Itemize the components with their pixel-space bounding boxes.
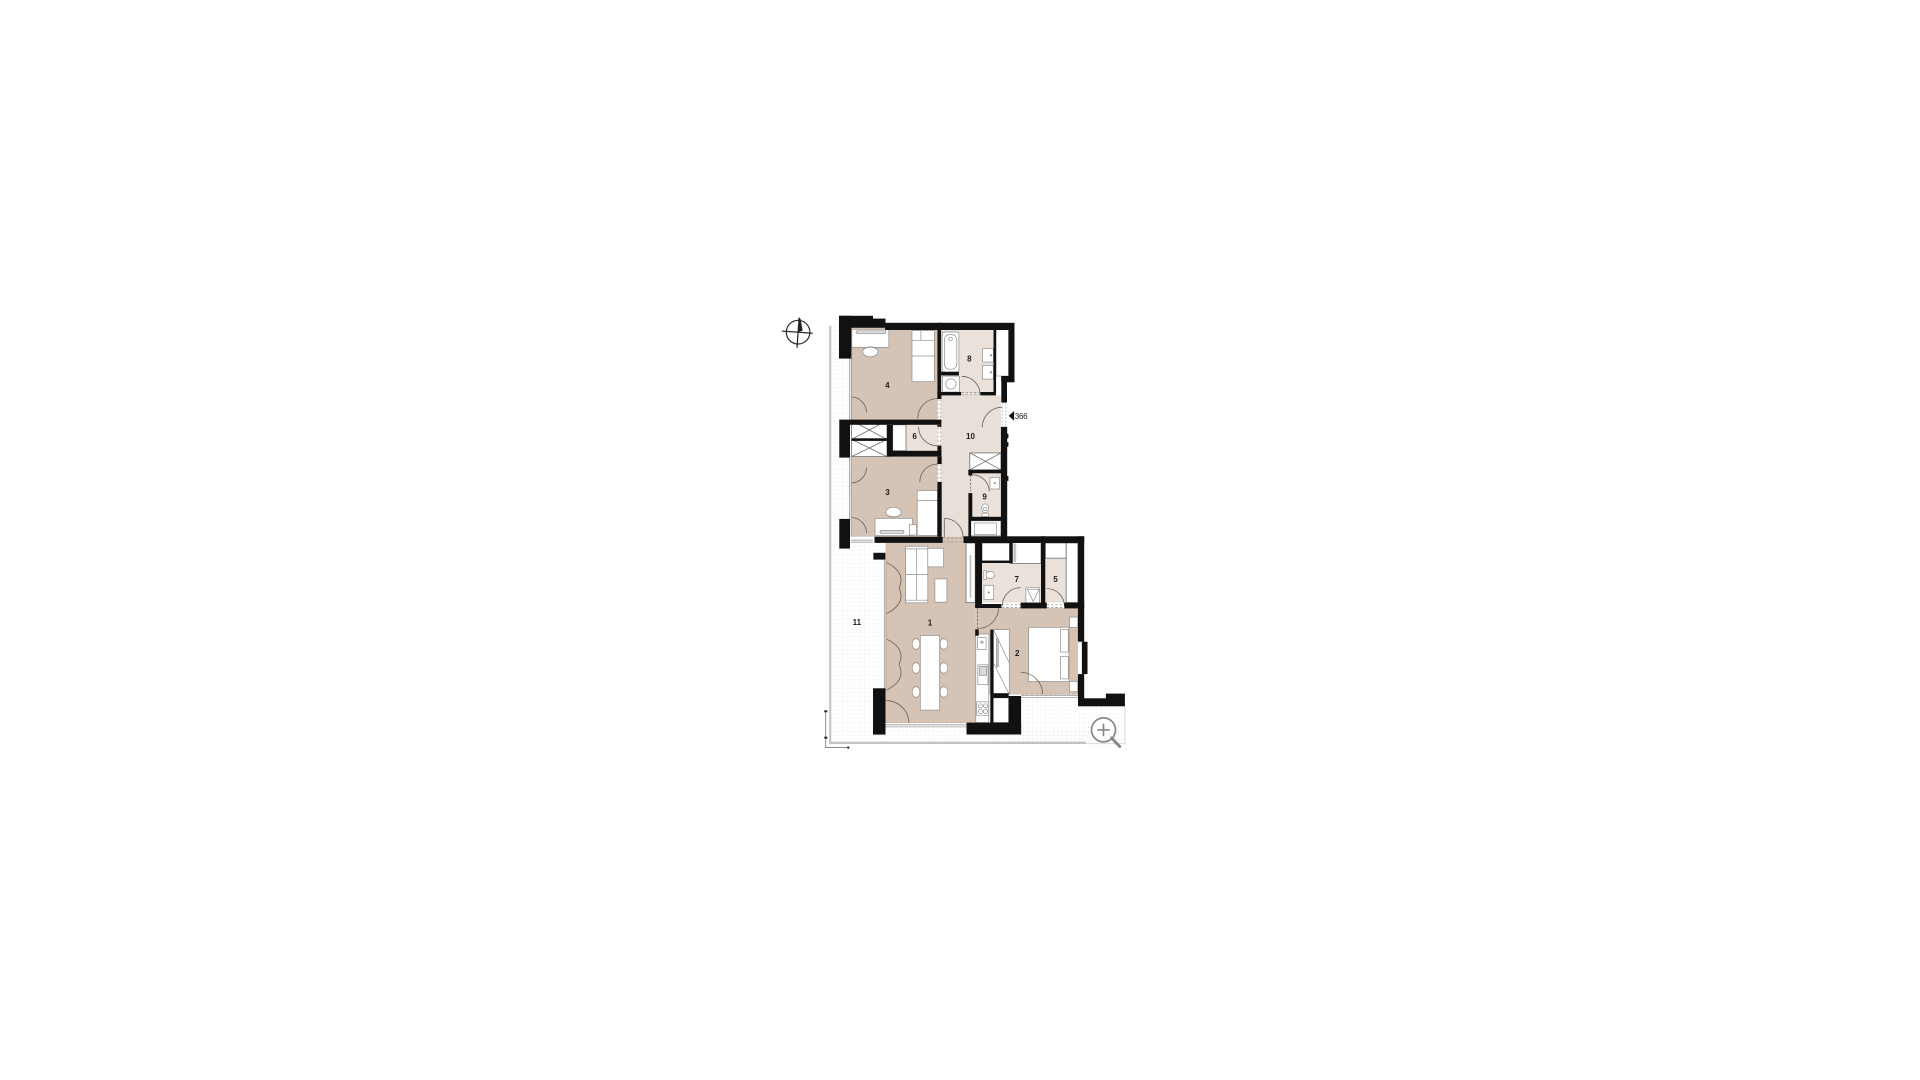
svg-text:3: 3 <box>885 488 890 497</box>
svg-text:10: 10 <box>966 432 975 441</box>
svg-text:9: 9 <box>982 493 987 502</box>
svg-text:8: 8 <box>967 355 972 364</box>
svg-text:1: 1 <box>928 618 933 627</box>
svg-text:2: 2 <box>1015 649 1020 658</box>
svg-text:11: 11 <box>853 618 862 627</box>
svg-text:5: 5 <box>1053 575 1058 584</box>
svg-text:6: 6 <box>912 432 917 441</box>
svg-text:7: 7 <box>1014 575 1019 584</box>
svg-text:4: 4 <box>885 381 890 390</box>
svg-text:366: 366 <box>1015 412 1028 421</box>
